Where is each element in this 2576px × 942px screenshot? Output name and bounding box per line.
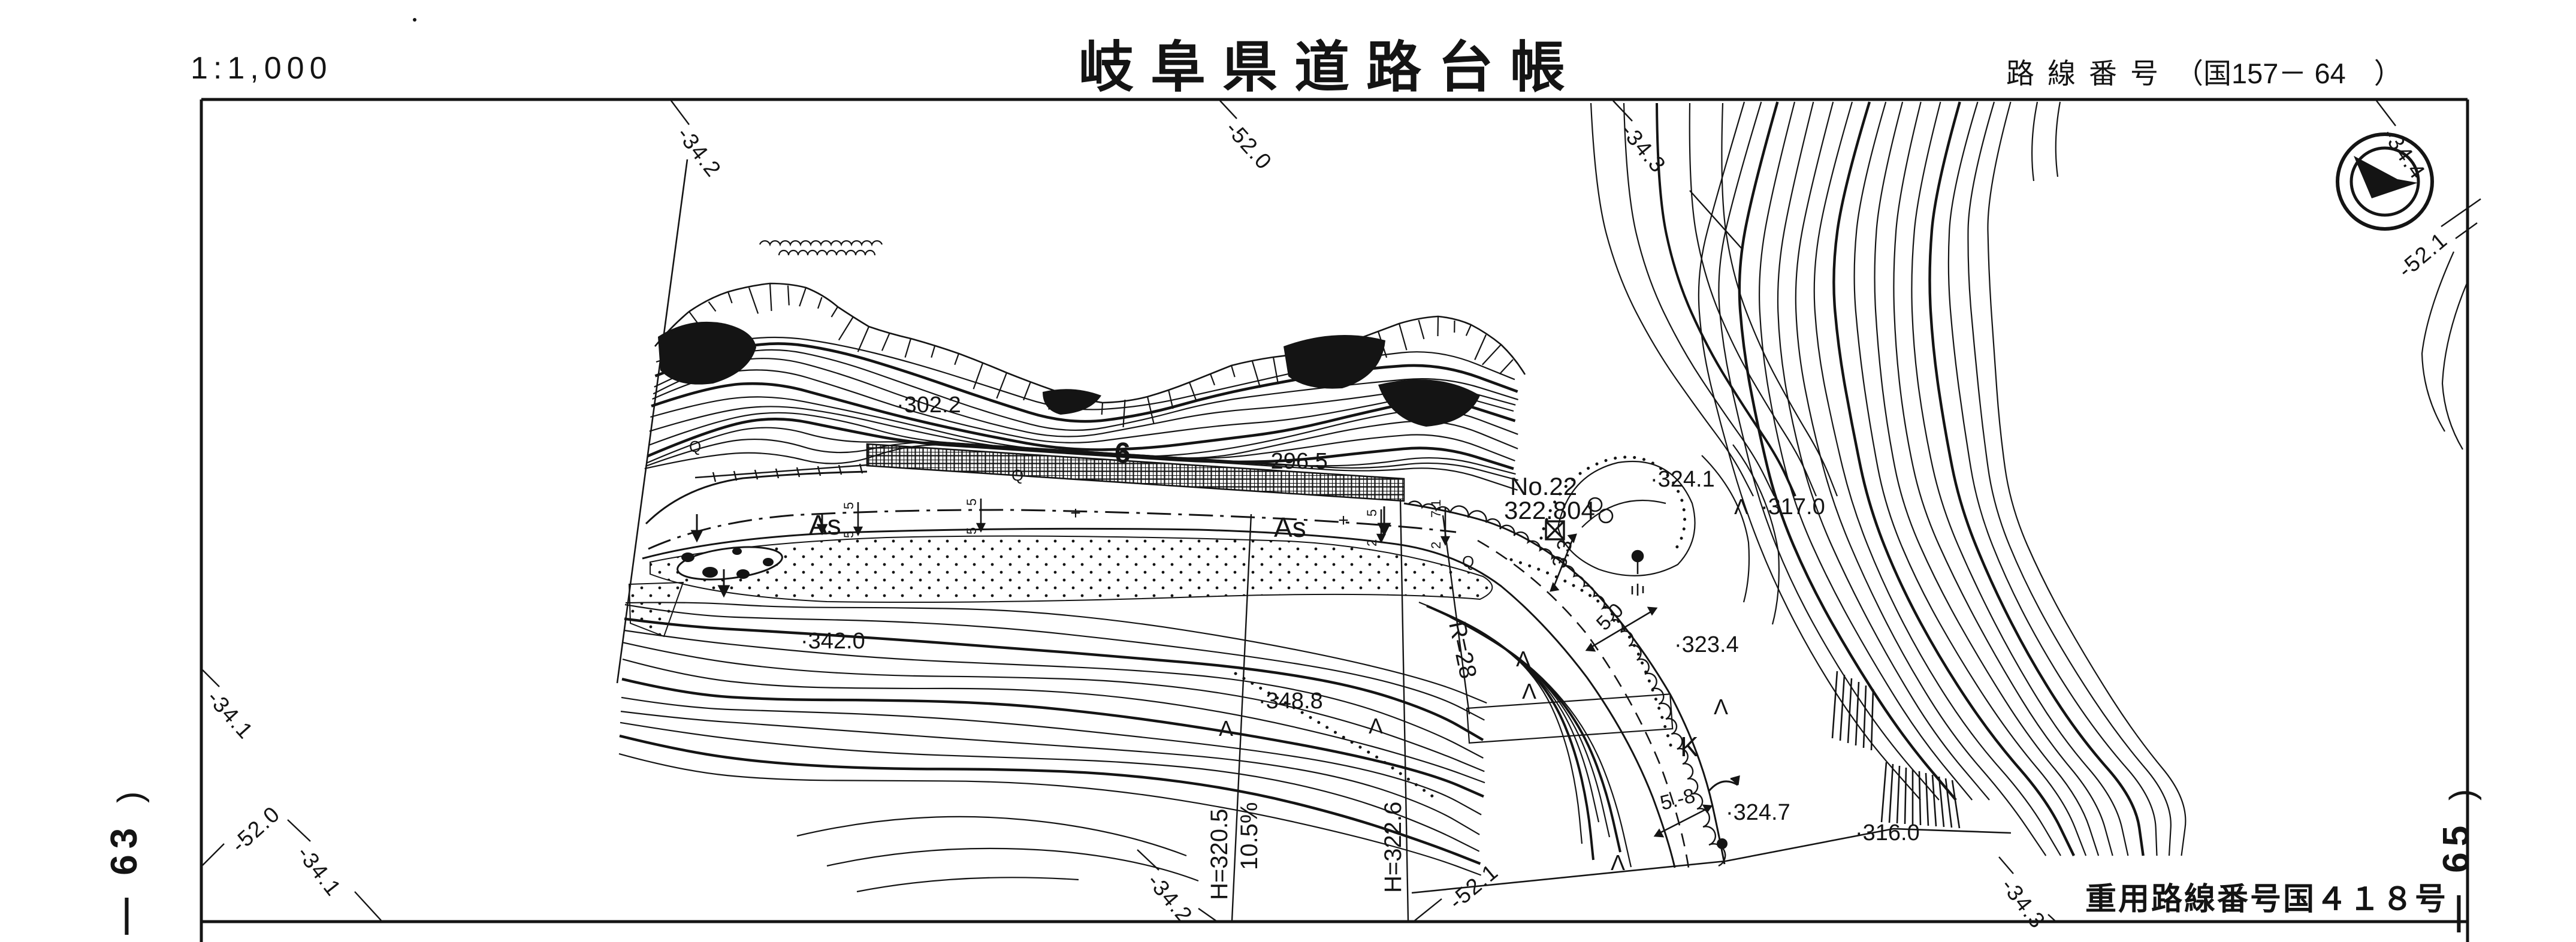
tree-symbol: Λ bbox=[1734, 494, 1748, 519]
wall-number-label: 6 bbox=[1115, 437, 1131, 469]
tick-label: 5 bbox=[964, 499, 979, 506]
spot-height-348-8: ·348.8 bbox=[1258, 689, 1323, 714]
tick-label: 5 bbox=[964, 527, 979, 535]
tree-symbol: Λ bbox=[1714, 695, 1728, 719]
tree-symbol: Λ bbox=[1369, 714, 1383, 738]
tick-label: 7.1 bbox=[1429, 499, 1443, 518]
compass-icon bbox=[2338, 134, 2432, 229]
spot-height-296-5: ·296.5 bbox=[1263, 449, 1328, 474]
tick-label: 2 bbox=[1364, 539, 1379, 547]
tick-label: 5 bbox=[1364, 509, 1379, 517]
spring-symbol: Q bbox=[1462, 552, 1474, 570]
spot-height-302-2: ·302.2 bbox=[896, 393, 961, 418]
profile-height-2: H=322.6 bbox=[1380, 802, 1406, 893]
centerline-plus: + bbox=[1070, 503, 1081, 523]
spring-symbol: Q bbox=[1011, 466, 1023, 484]
dimension-5-8: 5.-8 bbox=[1658, 784, 1698, 815]
tree-symbol: Λ bbox=[1522, 679, 1536, 704]
tick-label: 5 bbox=[841, 502, 856, 509]
station-elevation-label: 322.804 bbox=[1504, 496, 1595, 524]
pole-symbol bbox=[1632, 551, 1643, 596]
surface-label-as-1: As bbox=[809, 509, 841, 541]
spot-height-324-7: ·324.7 bbox=[1726, 800, 1790, 825]
profile-grade-1: 10.5% bbox=[1236, 802, 1263, 870]
hook-arrow-icon bbox=[1709, 777, 1739, 791]
spot-height-323-4: ·323.4 bbox=[1674, 632, 1739, 657]
spot-height-316-0: ·316.0 bbox=[1855, 820, 1920, 846]
surface-label-as-2: As bbox=[1274, 512, 1306, 543]
road-ledger-sheet: 1:1,000 岐阜県道路台帳 路線番号（国157－ 64 ） 重用路線番号国４… bbox=[0, 0, 2576, 942]
tree-symbol: Λ bbox=[1611, 850, 1625, 875]
map-canvas: As As 6 No.22 322.804 ·302.2 ·296.5 ·342… bbox=[0, 0, 2576, 942]
profile-height-1: H=320.5 bbox=[1206, 809, 1233, 900]
dimension-3-3: 3.3 bbox=[1548, 538, 1577, 570]
spot-height-317-0: ·317.0 bbox=[1760, 494, 1825, 520]
contour-lines-south-bowl bbox=[619, 602, 1487, 892]
map-frame bbox=[201, 99, 2468, 942]
speck bbox=[413, 18, 416, 22]
point-marker bbox=[1717, 838, 1728, 849]
spot-height-342-0: ·342.0 bbox=[801, 629, 865, 654]
centerline-plus: + bbox=[1338, 511, 1349, 530]
tree-symbol: Λ bbox=[1516, 647, 1530, 671]
shrub-line bbox=[760, 241, 882, 255]
tick-label: 5 bbox=[841, 531, 856, 538]
spot-height-324-1: ·324.1 bbox=[1650, 467, 1715, 492]
tree-symbol: Λ bbox=[1219, 716, 1233, 741]
k-zone-label: K bbox=[1680, 731, 1699, 762]
spring-symbol: Q bbox=[689, 437, 701, 455]
tick-label: 2 bbox=[1429, 542, 1443, 549]
road-edges bbox=[642, 472, 1725, 868]
